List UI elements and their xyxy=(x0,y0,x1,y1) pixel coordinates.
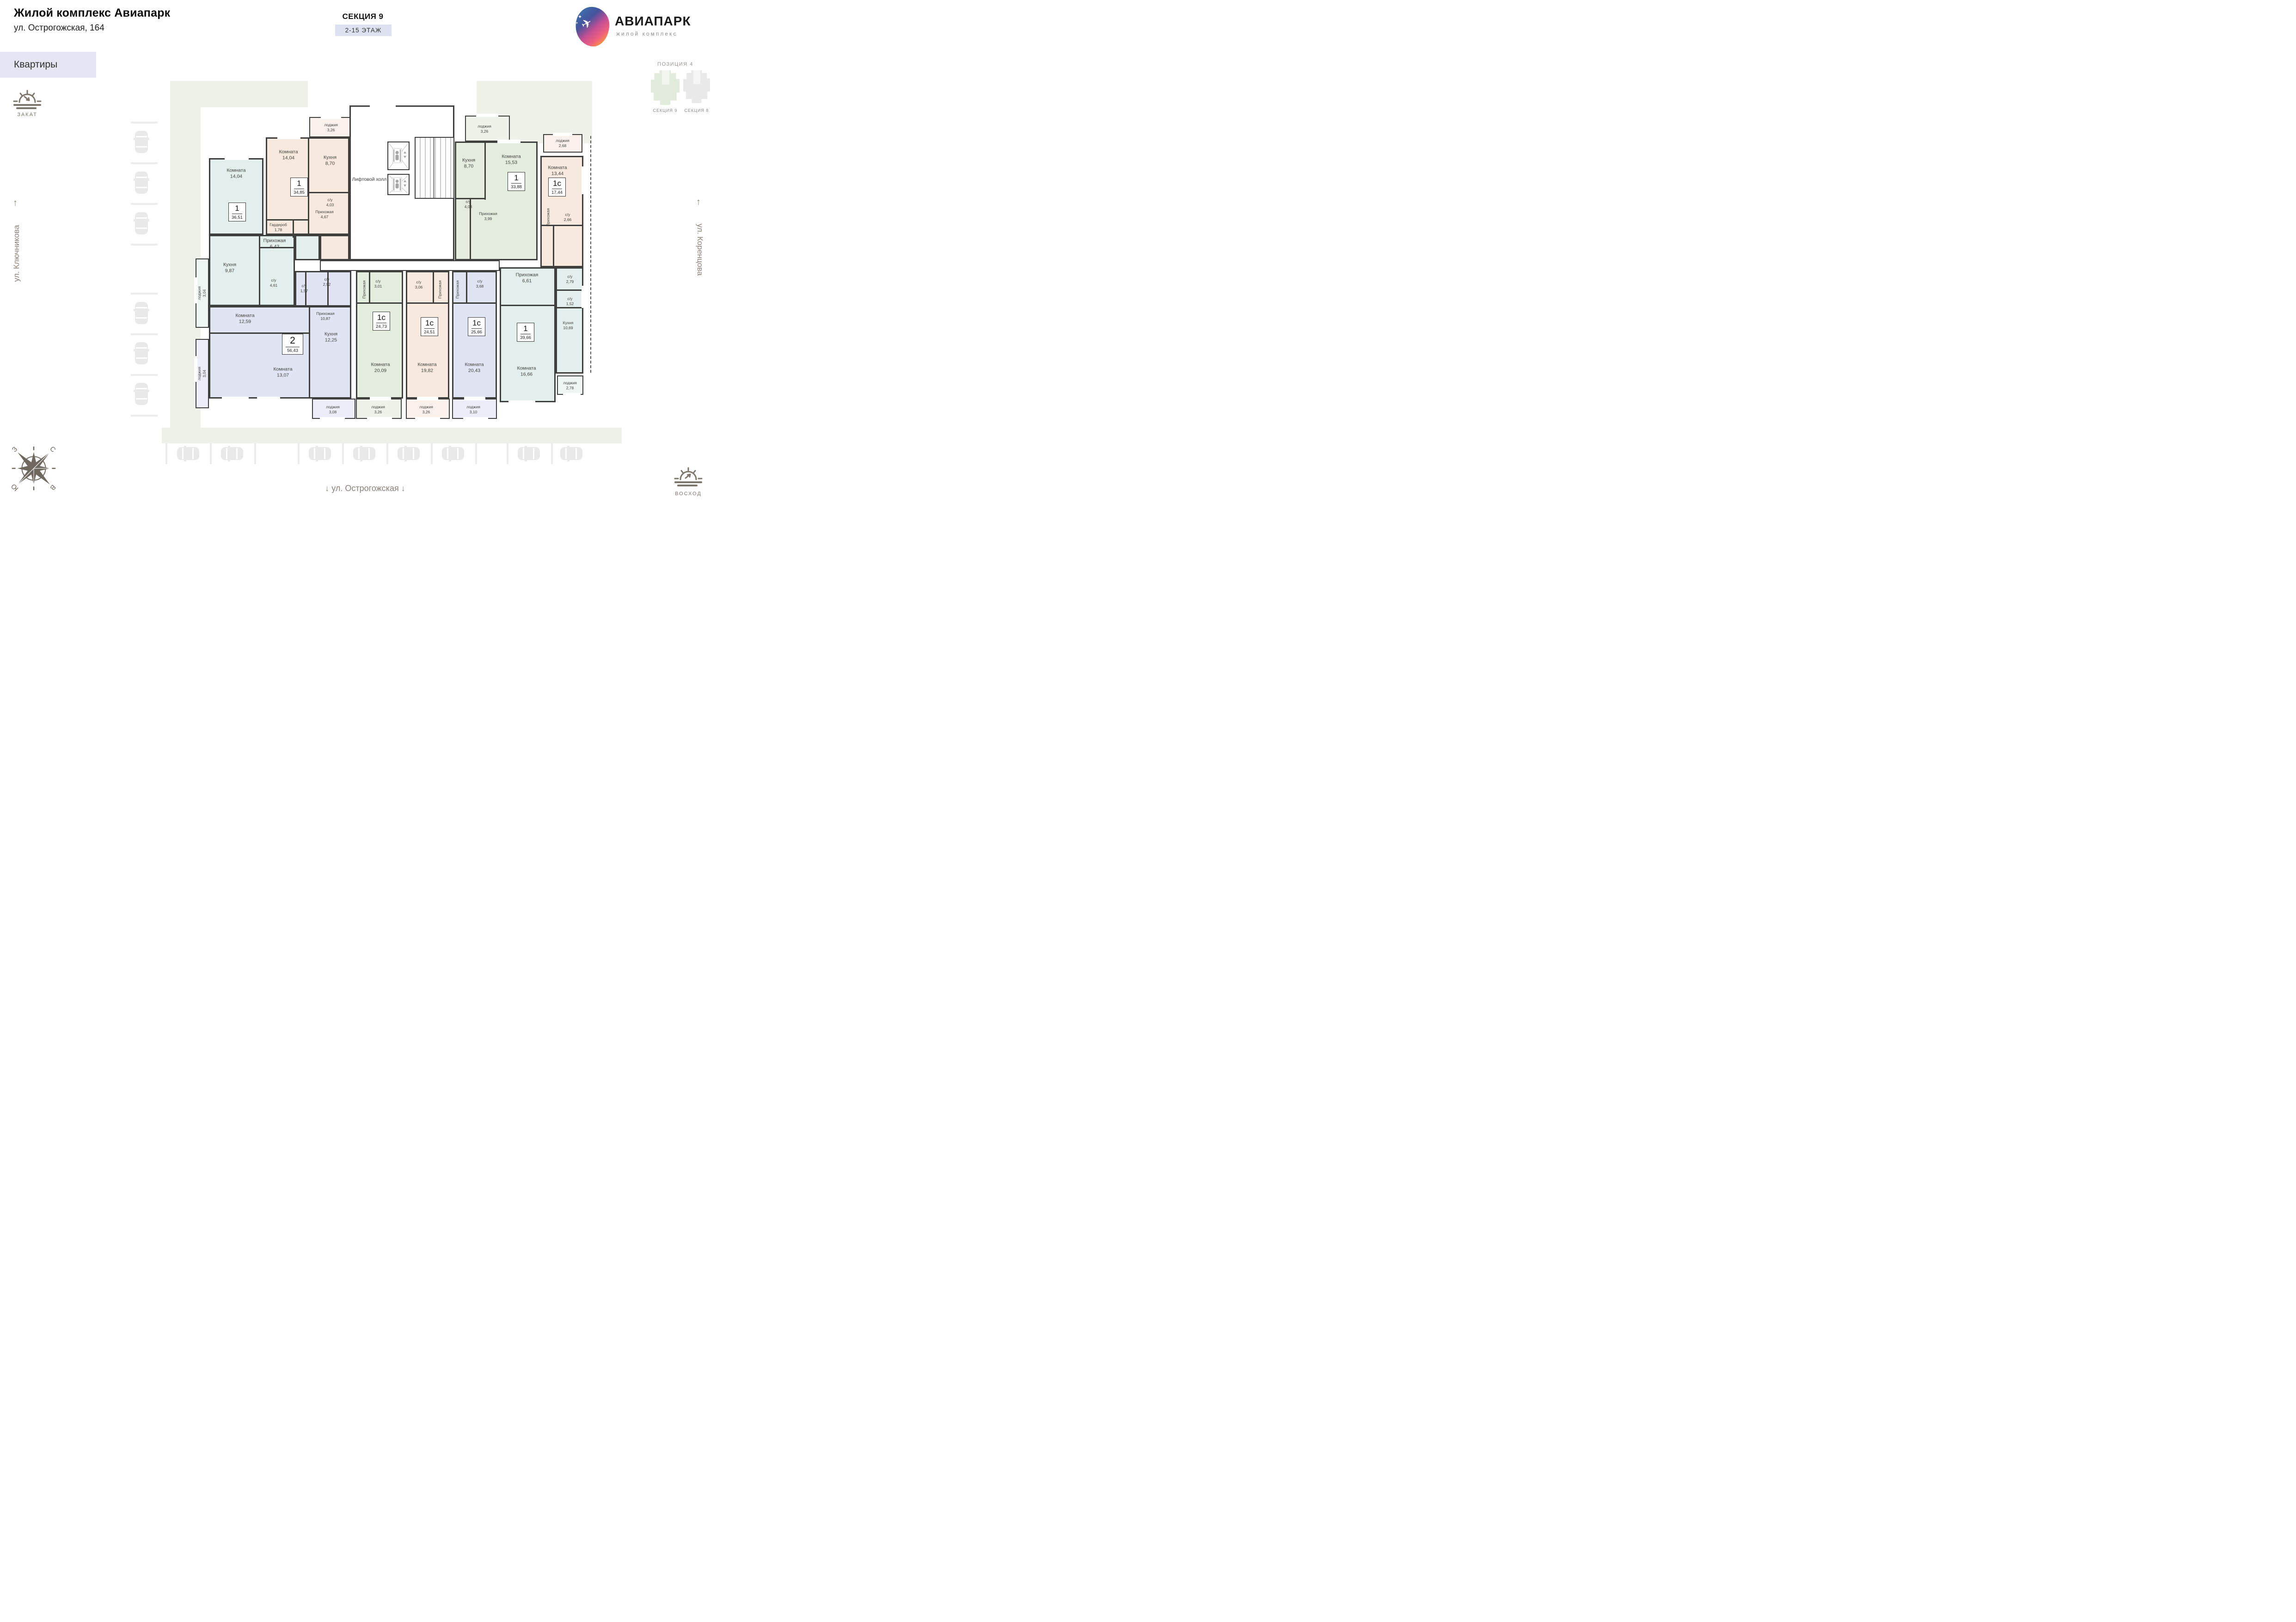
room-name: Прихожая xyxy=(455,280,460,298)
corridor xyxy=(320,260,500,271)
room-area: 20,43 xyxy=(465,368,484,374)
apartment-type: 1 xyxy=(511,174,521,184)
position-section-8-label: СЕКЦИЯ 8 xyxy=(681,108,712,113)
window xyxy=(370,104,396,108)
label-i-hall: Прихожая6,61 xyxy=(516,272,539,285)
parking-divider xyxy=(131,162,158,164)
room-area: 10,87 xyxy=(316,316,334,321)
position-section-9[interactable] xyxy=(651,70,680,106)
room-area: 1,52 xyxy=(566,301,574,307)
apartment-area: 24,51 xyxy=(421,329,438,335)
position-title: ПОЗИЦИЯ 4 xyxy=(645,61,705,67)
room-name: лоджия xyxy=(478,124,491,129)
wall xyxy=(500,305,556,306)
window xyxy=(257,397,280,400)
room-name: лоджия xyxy=(563,381,577,386)
label-e-su1: с/у1,57 xyxy=(300,283,308,294)
car-icon xyxy=(559,446,583,464)
apartment-area: 36,51 xyxy=(229,214,245,220)
room-area: 13,44 xyxy=(548,171,567,177)
badge-apartment-E[interactable]: 256,43 xyxy=(282,334,303,355)
position-section-9-label: СЕКЦИЯ 9 xyxy=(648,108,682,113)
wall xyxy=(266,219,308,221)
window xyxy=(367,417,392,420)
label-f-loggia: лоджия3,26 xyxy=(371,405,385,415)
car-icon xyxy=(352,446,376,464)
staircase xyxy=(415,137,454,199)
badge-apartment-A[interactable]: 136,51 xyxy=(228,203,246,221)
badge-apartment-C[interactable]: 133,88 xyxy=(508,172,525,191)
room-area: 19,82 xyxy=(417,368,436,374)
logo-name: АВИАПАРК xyxy=(615,14,691,29)
wall xyxy=(466,271,467,303)
room-name: с/у xyxy=(564,212,572,217)
car-icon xyxy=(134,211,149,238)
wall xyxy=(553,226,554,267)
room-area: 3,04 xyxy=(202,286,207,300)
room-area: 3,99 xyxy=(479,216,497,221)
wall xyxy=(259,235,260,306)
label-f-hall: Прихожая xyxy=(362,280,367,298)
car-icon xyxy=(134,171,149,197)
wall xyxy=(309,192,349,193)
label-d-loggia: лоджия2,68 xyxy=(556,138,569,148)
room-name: Комната xyxy=(517,366,536,372)
car-icon xyxy=(397,446,421,464)
room-area: 3,08 xyxy=(326,410,340,415)
elevator-icon xyxy=(387,141,410,170)
parking-divider xyxy=(131,122,158,123)
label-b-su: с/у4,03 xyxy=(326,197,334,208)
room-name: Прихожая xyxy=(438,280,443,298)
wall xyxy=(484,141,486,200)
parking-divider xyxy=(131,244,158,246)
window xyxy=(497,140,520,143)
apartment-type: 1 xyxy=(520,325,531,334)
room-name: Прихожая xyxy=(546,208,551,226)
street-bottom-label: ↓ ул. Острогожская ↓ xyxy=(325,484,405,493)
room-name: лоджия xyxy=(466,405,480,410)
room-name: Комната xyxy=(227,168,245,174)
apartment-type: 1с xyxy=(471,319,482,329)
apartment-area: 33,88 xyxy=(508,184,525,190)
arrow-up-icon: ↑ xyxy=(13,198,18,209)
site-boundary-dashed-line xyxy=(590,136,591,373)
floors-chip[interactable]: 2-15 ЭТАЖ xyxy=(335,25,392,36)
parking-divider xyxy=(131,415,158,417)
car-icon xyxy=(517,446,541,464)
room-area: 4,03 xyxy=(465,204,472,209)
section-title: СЕКЦИЯ 9 xyxy=(324,12,402,21)
badge-apartment-H[interactable]: 1с25,66 xyxy=(468,317,485,336)
room-name: Прихожая xyxy=(263,238,286,244)
wall xyxy=(327,271,329,307)
lift-hall-label: Лифтовой холл xyxy=(350,177,388,183)
label-c-room: Комната15,53 xyxy=(502,154,520,166)
room-area: 16,66 xyxy=(517,372,536,378)
room-name: Прихожая xyxy=(516,272,539,278)
window xyxy=(563,393,581,396)
window xyxy=(464,397,485,400)
label-i-su2: с/у1,52 xyxy=(566,296,574,307)
window xyxy=(222,397,249,400)
label-e-kitchen: Кухня12,25 xyxy=(325,332,337,344)
arrow-up-icon: ↑ xyxy=(696,197,701,208)
room-name: лоджия xyxy=(556,138,569,143)
wall xyxy=(309,306,310,399)
street-right-label: ул. Коренцова xyxy=(695,224,704,276)
window xyxy=(476,114,498,117)
label-a-su: с/у4,61 xyxy=(270,278,278,288)
room-area: 14,04 xyxy=(279,155,298,161)
car-icon xyxy=(134,341,149,368)
label-i-su1: с/у2,79 xyxy=(566,274,574,284)
badge-apartment-G[interactable]: 1с24,51 xyxy=(421,317,438,336)
label-e-room2: Комната13,07 xyxy=(273,367,292,379)
sparkle-icon: ✦ xyxy=(578,14,582,20)
room-name: Комната xyxy=(273,367,292,373)
room-name: лоджия xyxy=(371,405,385,410)
room-name: с/у xyxy=(300,283,308,289)
parking-divider xyxy=(254,443,256,464)
room-area: 3,26 xyxy=(324,128,338,133)
label-h-room: Комната20,43 xyxy=(465,362,484,375)
window xyxy=(417,397,438,400)
window xyxy=(370,397,391,400)
room-name: лоджия xyxy=(326,405,340,410)
window xyxy=(320,417,345,420)
label-c-hall: Прихожая3,99 xyxy=(479,211,497,221)
car-icon xyxy=(134,382,149,408)
room-name: Прихожая xyxy=(362,280,367,298)
label-g-hall: Прихожая xyxy=(438,280,443,298)
label-i-kitchen: Кухня10,69 xyxy=(563,320,574,331)
apartment-type: 2 xyxy=(286,336,300,347)
room-name: Комната xyxy=(417,362,436,368)
window xyxy=(582,166,585,194)
label-g-room: Комната19,82 xyxy=(417,362,436,375)
label-d-room: Комната13,44 xyxy=(548,165,567,178)
parking-divider xyxy=(342,443,344,464)
label-g-loggia: лоджия3,26 xyxy=(419,405,433,415)
room-area: 2,78 xyxy=(563,386,577,391)
compass-icon: З С Ю В xyxy=(6,441,61,496)
room-area: 12,25 xyxy=(325,338,337,344)
page-address: ул. Острогожская, 164 xyxy=(14,23,104,33)
room-name: с/у xyxy=(415,280,423,285)
room-area: 3,10 xyxy=(466,410,480,415)
window xyxy=(415,417,440,420)
apartment-area: 17,44 xyxy=(549,189,565,195)
badge-apartment-D[interactable]: 1с17,44 xyxy=(548,178,566,197)
parking-divider xyxy=(475,443,477,464)
room-name: Комната xyxy=(371,362,390,368)
window xyxy=(463,417,488,420)
car-icon xyxy=(308,446,332,464)
room-area: 10,69 xyxy=(563,326,574,331)
wall xyxy=(406,302,449,304)
room-area: 8,70 xyxy=(462,164,475,170)
label-h-loggia: лоджия3,10 xyxy=(466,405,480,415)
room-area: 9,87 xyxy=(223,268,236,274)
apartment-type: 1с xyxy=(552,179,562,189)
car-icon xyxy=(441,446,465,464)
apartment-area: 34,85 xyxy=(291,189,307,195)
room-name: Комната xyxy=(502,154,520,160)
parking-divider xyxy=(131,333,158,335)
sunset-label: ЗАКАТ xyxy=(11,112,43,117)
room-area: 3,26 xyxy=(478,129,491,134)
window xyxy=(508,400,535,404)
room-area: 12,59 xyxy=(235,319,254,325)
street-left-label: ул. Ключникова xyxy=(12,225,21,282)
wall xyxy=(452,302,497,304)
label-e-room1: Комната12,59 xyxy=(235,313,254,326)
room-name: с/у xyxy=(465,199,472,204)
label-a-hall: Прихожая6,42 xyxy=(263,238,286,251)
tab-apartments[interactable]: Квартиры xyxy=(0,52,96,78)
room-ext-B xyxy=(320,235,349,260)
room-name: Кухня xyxy=(563,320,574,326)
apartment-type: 1с xyxy=(376,313,386,323)
badge-apartment-B[interactable]: 134,85 xyxy=(290,178,308,197)
label-d-hall: Прихожая xyxy=(546,208,551,226)
window xyxy=(553,133,572,136)
apartment-type: 1 xyxy=(232,204,242,214)
label-e-hall: Прихожая10,87 xyxy=(316,311,334,321)
room-name: с/у xyxy=(326,197,334,203)
room-name: лоджия xyxy=(197,367,202,381)
label-c-kitchen: Кухня8,70 xyxy=(462,158,475,170)
label-h-hall: Прихожая xyxy=(455,280,460,298)
sparkle-icon: ✦ xyxy=(576,21,578,25)
room-ext-A xyxy=(295,235,320,260)
parking-divider xyxy=(386,443,388,464)
apartment-type: 1 xyxy=(294,179,304,189)
label-h-su: с/у3,68 xyxy=(476,279,484,289)
floorplan-page: Жилой комплекс Авиапарк ул. Острогожская… xyxy=(0,0,717,507)
wall xyxy=(369,271,370,303)
room-area: 3,68 xyxy=(476,284,484,289)
wall xyxy=(308,137,309,235)
room-area: 3,26 xyxy=(371,410,385,415)
room-name: Кухня xyxy=(324,155,337,161)
label-e-loggia2: лоджия3,08 xyxy=(326,405,340,415)
room-area: 2,79 xyxy=(566,279,574,284)
logo-subtitle: жилой комплекс xyxy=(616,31,677,37)
room-area: 6,61 xyxy=(516,278,539,284)
arrow-down-icon: ↓ xyxy=(401,484,405,493)
sunset-icon xyxy=(13,88,42,110)
label-a-room: Комната14,04 xyxy=(227,168,245,180)
parking-divider xyxy=(131,374,158,376)
site-area xyxy=(162,428,622,443)
wall xyxy=(433,271,434,303)
room-name: Комната xyxy=(465,362,484,368)
room-area: 2,68 xyxy=(556,143,569,148)
sunrise-label: ВОСХОД xyxy=(671,491,705,497)
room-name: лоджия xyxy=(419,405,433,410)
room-name: Кухня xyxy=(223,262,236,268)
label-b-hall: Прихожая4,67 xyxy=(315,209,333,220)
wall xyxy=(556,289,583,291)
car-icon xyxy=(176,446,200,464)
apartment-area: 56,43 xyxy=(282,347,303,353)
badge-apartment-I[interactable]: 139,66 xyxy=(517,323,534,342)
badge-apartment-F[interactable]: 1с24,73 xyxy=(373,312,390,331)
label-a-loggia: лоджия3,04 xyxy=(197,286,207,300)
label-i-room: Комната16,66 xyxy=(517,366,536,378)
label-f-su: с/у3,01 xyxy=(374,279,382,289)
room-area: 1,57 xyxy=(300,289,308,294)
room-area: 3,06 xyxy=(415,285,423,290)
room-name: Прихожая xyxy=(316,311,334,316)
parking-divider xyxy=(210,443,212,464)
car-icon xyxy=(134,301,149,327)
label-b-loggia: лоджия3,26 xyxy=(324,123,338,133)
room-area: 20,09 xyxy=(371,368,390,374)
room-area: 1,78 xyxy=(269,227,287,233)
room-area: 14,04 xyxy=(227,174,245,180)
room-name: с/у xyxy=(323,277,331,282)
label-a-kitchen: Кухня9,87 xyxy=(223,262,236,275)
room-name: Кухня xyxy=(325,332,337,338)
room-name: с/у xyxy=(270,278,278,283)
car-icon xyxy=(220,446,244,464)
site-area xyxy=(170,81,308,107)
label-e-su2: с/у2,92 xyxy=(323,277,331,287)
parking-divider xyxy=(165,443,167,464)
wall xyxy=(293,220,294,238)
elevator-icon xyxy=(387,174,410,195)
room-name: с/у xyxy=(374,279,382,284)
arrow-down-icon: ↓ xyxy=(325,484,329,493)
page-title: Жилой комплекс Авиапарк xyxy=(14,6,170,20)
room-name: Прихожая xyxy=(315,209,333,215)
room-area: 3,01 xyxy=(374,284,382,289)
room-area: 6,42 xyxy=(263,244,286,250)
room-name: Кухня xyxy=(462,158,475,164)
label-f-room: Комната20,09 xyxy=(371,362,390,375)
label-c-su: с/у4,03 xyxy=(465,199,472,209)
room-name: Комната xyxy=(548,165,567,171)
parking-divider xyxy=(551,443,553,464)
parking-divider xyxy=(298,443,300,464)
window xyxy=(277,135,300,139)
wall xyxy=(556,307,583,308)
room-name: с/у xyxy=(476,279,484,284)
room-name: лоджия xyxy=(324,123,338,128)
label-b-kitchen: Кухня8,70 xyxy=(324,155,337,167)
room-area: 2,92 xyxy=(323,282,331,287)
room-name: с/у xyxy=(566,296,574,301)
room-area: 3,26 xyxy=(419,410,433,415)
parking-divider xyxy=(131,293,158,295)
room-name: Прихожая xyxy=(479,211,497,216)
room-area: 2,66 xyxy=(564,217,572,222)
room-name: Комната xyxy=(279,149,298,155)
apartment-area: 25,66 xyxy=(468,329,485,335)
label-b-room: Комната14,04 xyxy=(279,149,298,162)
window xyxy=(321,116,341,119)
room-name: Гардероб xyxy=(269,222,287,227)
car-icon xyxy=(134,130,149,156)
room-area: 3,04 xyxy=(202,367,207,381)
room-area: 4,67 xyxy=(315,215,333,220)
parking-divider xyxy=(131,203,158,205)
sunrise-icon xyxy=(674,465,703,487)
room-name: лоджия xyxy=(197,286,202,300)
window xyxy=(582,286,585,308)
apartment-area: 24,73 xyxy=(373,323,390,329)
room-area: 4,03 xyxy=(326,203,334,208)
parking-divider xyxy=(431,443,433,464)
room-area: 15,53 xyxy=(502,160,520,166)
apartment-type: 1с xyxy=(424,319,435,329)
label-e-loggia1: лоджия3,04 xyxy=(197,367,207,381)
label-b-ward: Гардероб1,78 xyxy=(269,222,287,233)
wall xyxy=(356,302,403,304)
tab-apartments-label: Квартиры xyxy=(14,59,57,70)
parking-divider xyxy=(507,443,508,464)
label-c-loggia: лоджия3,26 xyxy=(478,124,491,134)
room-area: 13,07 xyxy=(273,373,292,379)
room-name: с/у xyxy=(566,274,574,279)
label-d-su: с/у2,66 xyxy=(564,212,572,222)
room-name: Комната xyxy=(235,313,254,319)
label-g-su: с/у3,06 xyxy=(415,280,423,290)
window xyxy=(225,156,249,160)
label-i-loggia: лоджия2,78 xyxy=(563,381,577,391)
room-area: 8,70 xyxy=(324,161,337,167)
apartment-area: 39,66 xyxy=(517,334,534,340)
room-area: 4,61 xyxy=(270,283,278,288)
position-section-8[interactable] xyxy=(683,70,710,104)
